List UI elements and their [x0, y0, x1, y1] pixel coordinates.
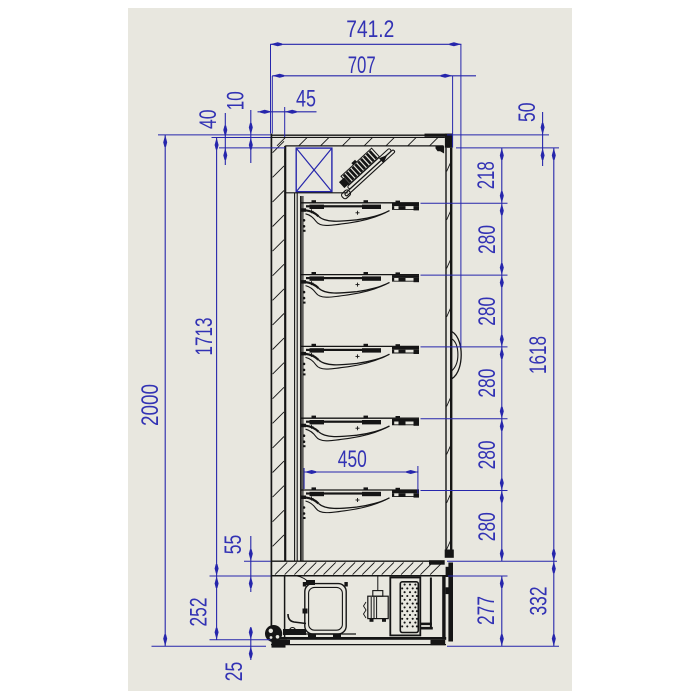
- svg-text:450: 450: [338, 446, 367, 473]
- svg-text:252: 252: [186, 598, 213, 627]
- svg-text:741.2: 741.2: [346, 16, 394, 43]
- svg-text:280: 280: [474, 512, 501, 541]
- svg-text:707: 707: [348, 52, 376, 79]
- svg-text:2000: 2000: [137, 384, 164, 426]
- svg-text:45: 45: [296, 86, 316, 113]
- svg-text:280: 280: [474, 440, 501, 469]
- svg-text:332: 332: [526, 587, 553, 616]
- svg-text:10: 10: [222, 91, 249, 110]
- svg-text:25: 25: [221, 662, 248, 682]
- svg-text:55: 55: [220, 535, 247, 555]
- svg-text:1618: 1618: [525, 336, 552, 374]
- svg-text:280: 280: [474, 369, 501, 398]
- svg-text:277: 277: [473, 596, 500, 625]
- svg-text:1713: 1713: [191, 318, 218, 356]
- svg-text:50: 50: [514, 102, 541, 122]
- svg-text:280: 280: [474, 297, 501, 326]
- svg-text:218: 218: [473, 161, 500, 189]
- svg-text:40: 40: [195, 110, 222, 130]
- svg-text:280: 280: [474, 225, 501, 254]
